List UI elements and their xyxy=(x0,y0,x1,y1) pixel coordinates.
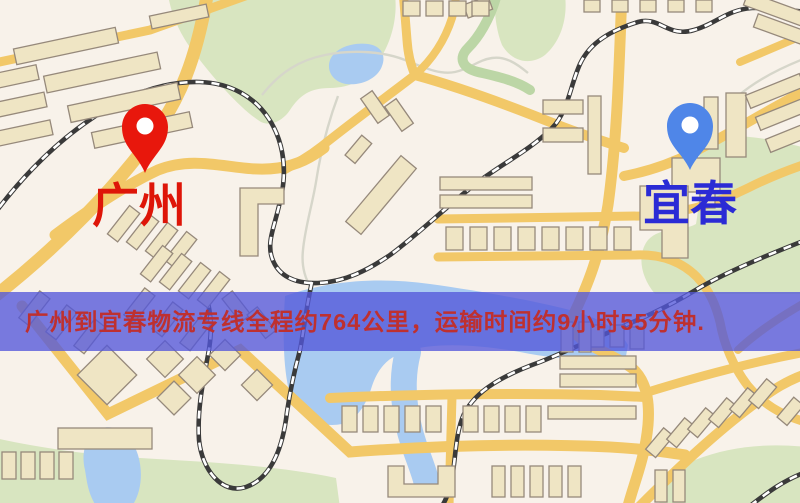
road xyxy=(330,394,645,398)
map-canvas: 广州到宜春物流专线全程约764公里，运输时间约9小时55分钟. 广州 宜春 xyxy=(0,0,800,503)
blue-map-pin-hole xyxy=(682,117,699,134)
banner-text: 广州到宜春物流专线全程约764公里，运输时间约9小时55分钟. xyxy=(25,308,705,335)
map-screenshot: 广州到宜春物流专线全程约764公里，运输时间约9小时55分钟. 广州 宜春 xyxy=(0,0,800,503)
origin-city-label: 广州 xyxy=(92,181,186,233)
destination-city-label: 宜春 xyxy=(643,179,737,231)
red-map-pin-hole xyxy=(137,118,154,135)
